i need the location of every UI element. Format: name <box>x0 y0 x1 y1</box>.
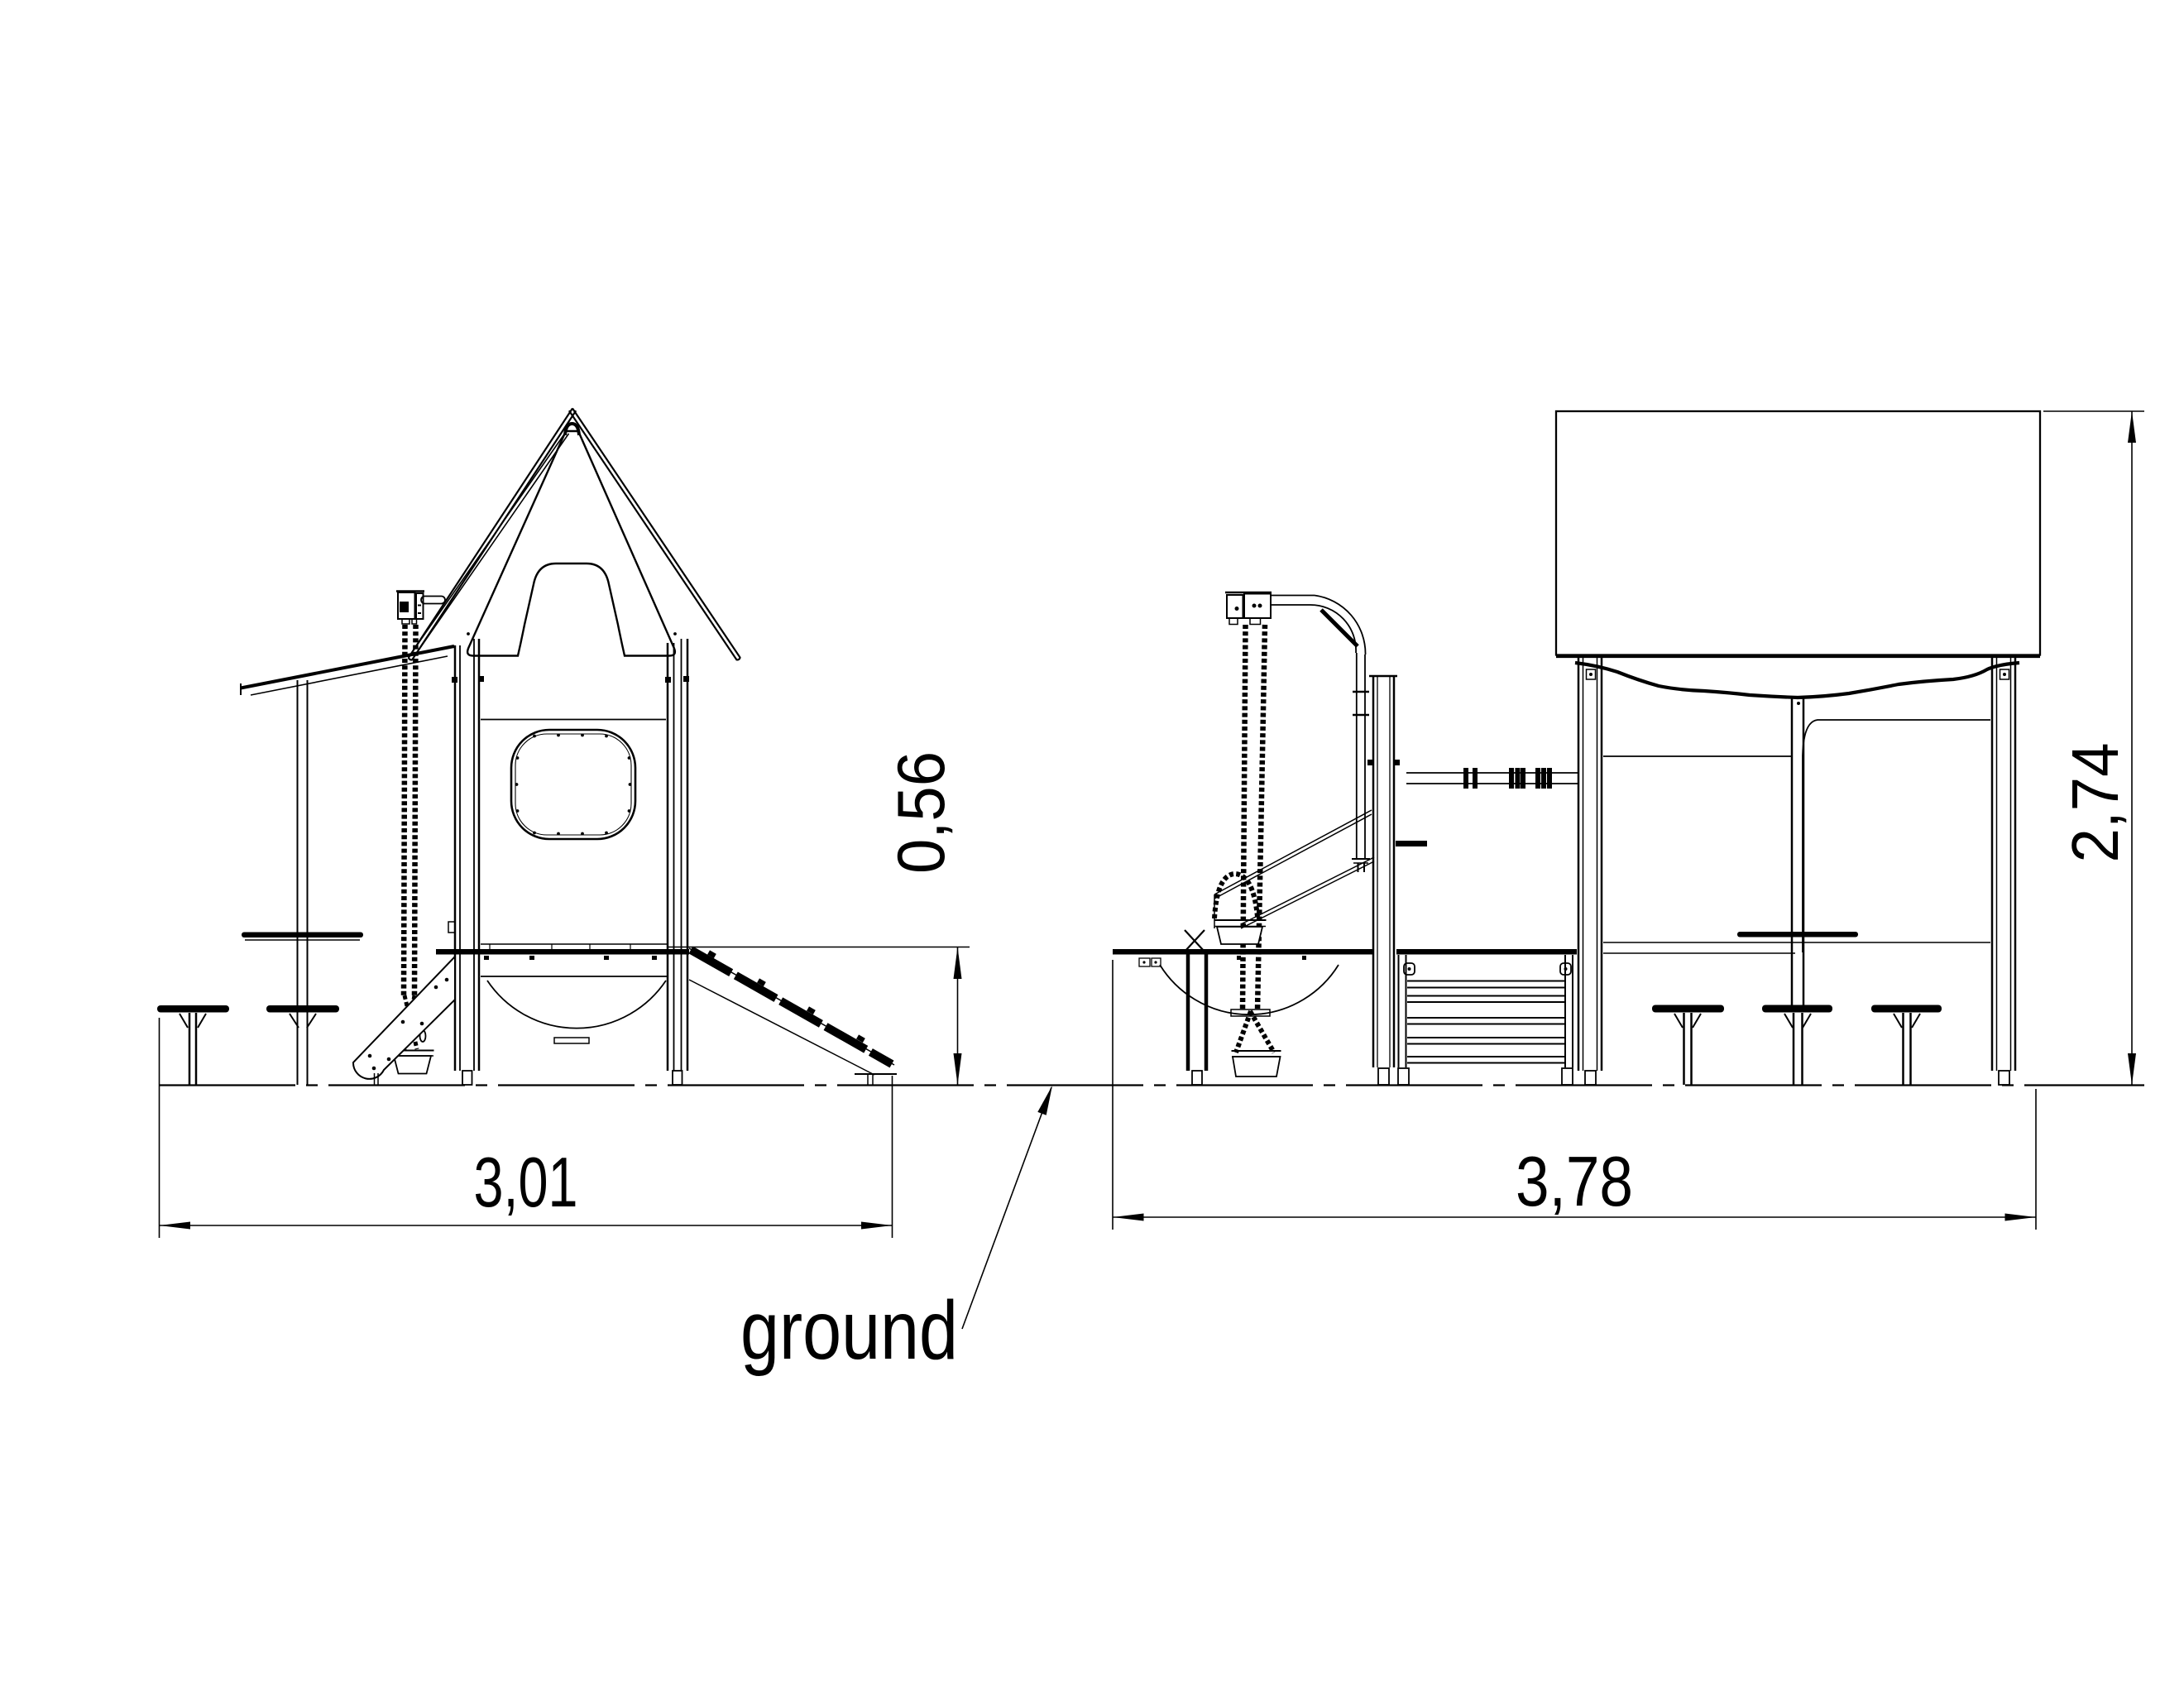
svg-text:3,78: 3,78 <box>1516 1143 1633 1221</box>
svg-text:ground: ground <box>740 1284 958 1377</box>
svg-text:2,74: 2,74 <box>2058 743 2132 863</box>
svg-text:3,01: 3,01 <box>474 1144 578 1222</box>
svg-text:0,56: 0,56 <box>884 751 959 874</box>
